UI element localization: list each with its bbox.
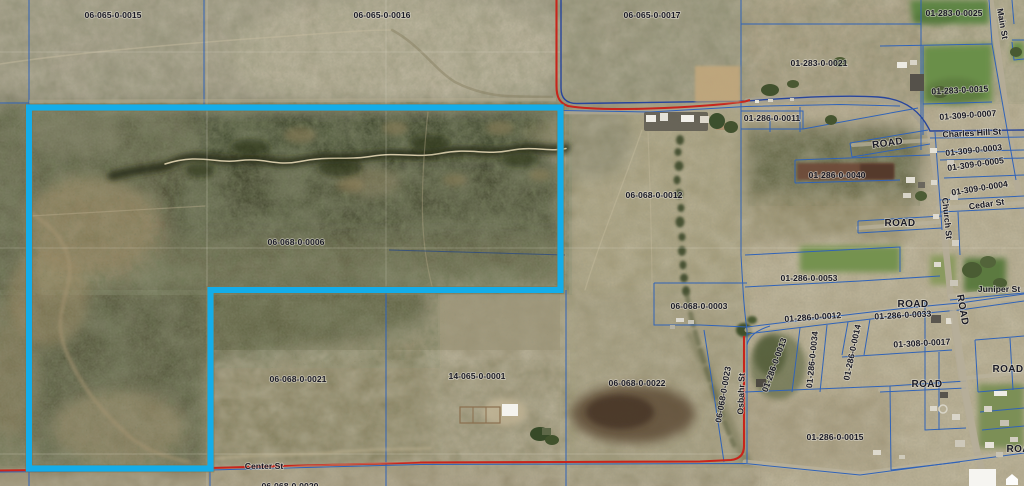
svg-text:06-068-0-0021: 06-068-0-0021 [270, 374, 327, 384]
svg-text:01-286-0-0053: 01-286-0-0053 [781, 273, 838, 283]
svg-text:01-286-0-0011: 01-286-0-0011 [744, 113, 801, 123]
svg-text:06-068-0-0022: 06-068-0-0022 [609, 378, 666, 388]
svg-text:06-068-0-0006: 06-068-0-0006 [268, 237, 325, 247]
svg-text:06-068-0-0012: 06-068-0-0012 [626, 190, 683, 200]
svg-text:06-065-0-0015: 06-065-0-0015 [85, 10, 142, 20]
svg-text:01-283-0-0021: 01-283-0-0021 [791, 58, 848, 68]
svg-text:ROAD: ROAD [1006, 444, 1024, 455]
svg-text:14-065-0-0001: 14-065-0-0001 [449, 371, 506, 381]
svg-text:06-068-0-0020: 06-068-0-0020 [262, 481, 319, 486]
svg-text:01-286-0-0015: 01-286-0-0015 [807, 432, 864, 442]
svg-text:Center St: Center St [245, 461, 284, 471]
svg-text:06-068-0-0003: 06-068-0-0003 [671, 301, 728, 311]
svg-text:ROAD: ROAD [992, 364, 1023, 375]
svg-text:Osbahr St: Osbahr St [735, 373, 746, 415]
svg-text:ROAD: ROAD [884, 218, 915, 229]
svg-text:06-065-0-0016: 06-065-0-0016 [354, 10, 411, 20]
svg-text:01-283-0-0025: 01-283-0-0025 [926, 8, 983, 18]
svg-text:Juniper St: Juniper St [978, 284, 1021, 294]
svg-text:ROAD: ROAD [911, 379, 942, 390]
svg-text:01-286-0-0040: 01-286-0-0040 [809, 170, 866, 180]
svg-text:06-065-0-0017: 06-065-0-0017 [624, 10, 681, 20]
